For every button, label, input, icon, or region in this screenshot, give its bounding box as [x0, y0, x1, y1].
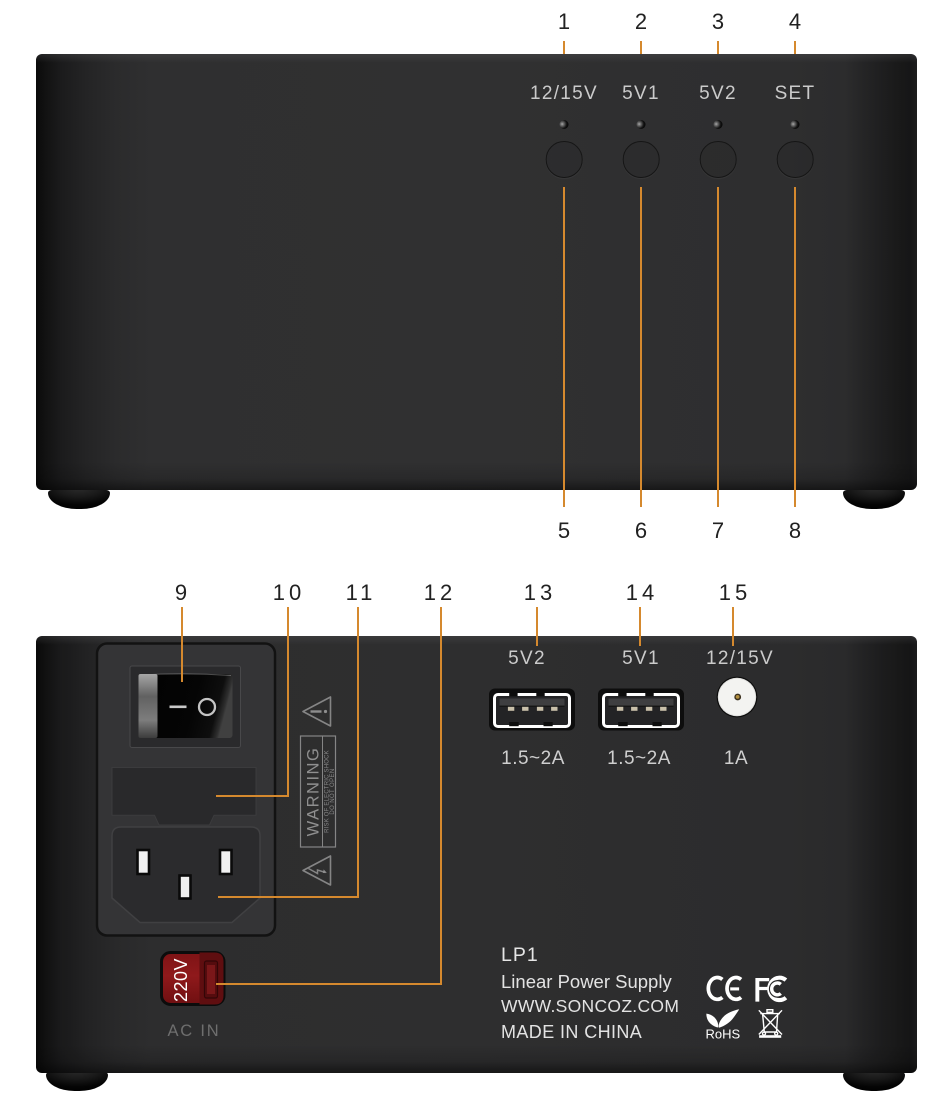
svg-text:RoHS: RoHS	[706, 1027, 741, 1042]
svg-text:WARNING: WARNING	[305, 747, 323, 837]
svg-text:DO NOT OPEN: DO NOT OPEN	[330, 768, 336, 814]
